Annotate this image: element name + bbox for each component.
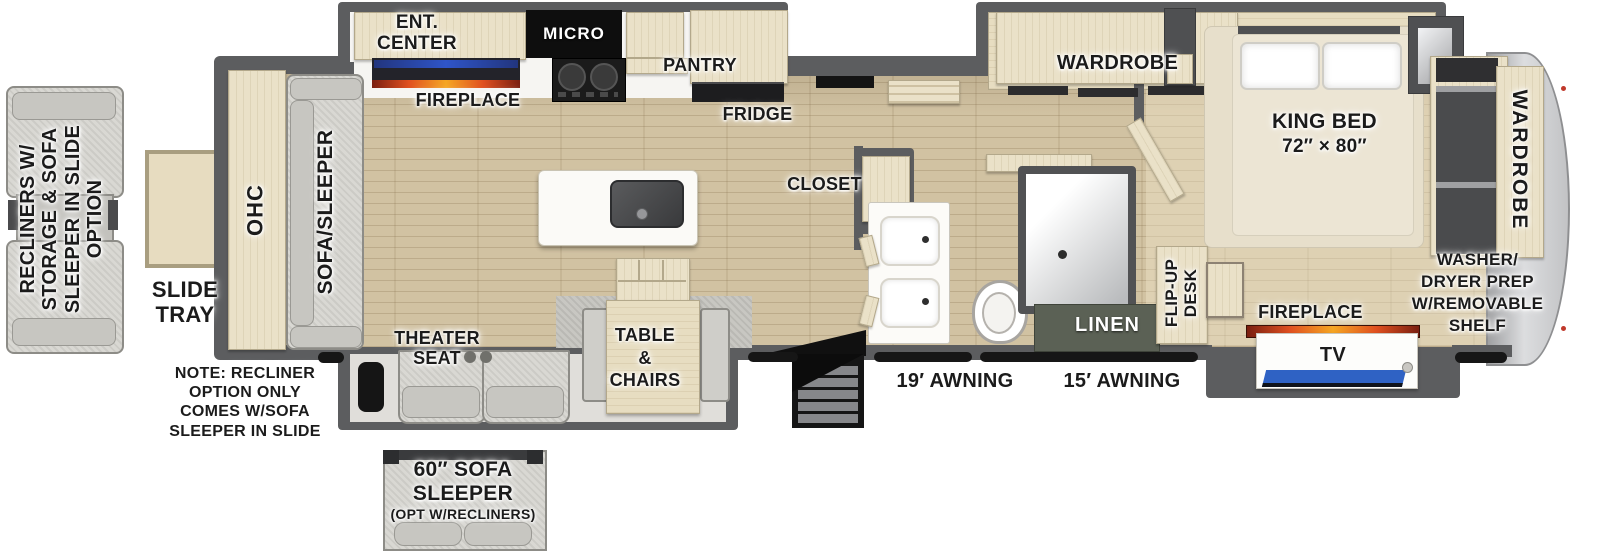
sofa-option-line: SLEEPER: [383, 482, 543, 506]
slide-tray-line: TRAY: [130, 303, 240, 328]
pillow: [1322, 42, 1402, 90]
sofa-option-cushion: [464, 522, 532, 546]
step: [798, 414, 858, 423]
pantry-upper-cabinet: [626, 12, 684, 58]
washer-dryer-line: DRYER PREP: [1390, 271, 1565, 293]
note-line: SLEEPER IN SLIDE: [165, 422, 325, 441]
wardrobe-bedroom-label: WARDROBE: [1040, 52, 1195, 74]
note-line: NOTE: RECLINER: [165, 364, 325, 383]
fireplace-front-glass: [374, 60, 518, 68]
ent-center-label: ENT. CENTER: [352, 12, 482, 55]
console-latch: [108, 200, 118, 230]
awning-rail: [980, 352, 1198, 362]
sink-drain: [922, 298, 929, 305]
island-sink: [610, 180, 684, 228]
sofa-sleeper-label: SOFA/SLEEPER: [314, 130, 338, 295]
hutch-divider: [662, 260, 664, 280]
recliner-back: [12, 92, 116, 120]
recliner-option-line: SLEEPER IN SLIDE: [62, 125, 84, 313]
ohc-label: OHC: [244, 184, 269, 236]
sofa-option-line: 60″ SOFA: [383, 458, 543, 482]
hall-steps: [888, 80, 960, 104]
sink-drain: [922, 236, 929, 243]
bath-sink: [880, 216, 940, 266]
theater-seat-line: SEAT: [372, 348, 502, 368]
ent-center-line: ENT.: [352, 12, 482, 33]
theater-seat-line: THEATER: [372, 328, 502, 348]
faucet: [636, 208, 648, 220]
wall: [776, 64, 988, 76]
table-chairs-line: CHAIRS: [595, 369, 695, 392]
washer-dryer-line: WASHER/: [1390, 249, 1565, 271]
tv-label: TV: [1298, 344, 1368, 366]
bath-sink: [880, 278, 940, 328]
fridge-label: FRIDGE: [710, 104, 805, 124]
pillow: [1240, 42, 1320, 90]
fireplace-bedroom-label: FIREPLACE: [1248, 302, 1373, 322]
rear-closet-shelf: [1436, 86, 1498, 182]
desk-stool: [1206, 262, 1244, 318]
recliner-option-line: RECLINERS W/: [17, 125, 39, 313]
hanging-rod: [1078, 88, 1138, 97]
awning-arm: [318, 352, 344, 363]
stove-knobs: [558, 92, 618, 97]
sofa-option-line: (OPT W/RECLINERS): [383, 506, 543, 522]
hutch-shelf: [618, 280, 686, 282]
flip-up-desk-line: DESK: [1181, 259, 1200, 327]
flip-up-desk-line: FLIP-UP: [1162, 259, 1181, 327]
dinette-hutch: [616, 258, 690, 306]
washer-dryer-label: WASHER/ DRYER PREP W/REMOVABLE SHELF: [1390, 249, 1565, 337]
king-bed-line: KING BED: [1252, 108, 1397, 135]
flip-up-desk-label: FLIP-UP DESK: [1162, 259, 1200, 327]
toilet-seat: [982, 292, 1016, 334]
fireplace-front-label: FIREPLACE: [398, 90, 538, 110]
closet-label: CLOSET: [772, 174, 877, 194]
theater-seat-cushion: [402, 386, 480, 418]
hanging-rod: [1008, 86, 1068, 95]
fridge: [692, 82, 784, 102]
hutch-divider: [638, 260, 640, 280]
linen-label: LINEN: [1060, 314, 1155, 336]
fireplace-front-flame: [372, 80, 520, 88]
sofa-arm: [290, 78, 362, 100]
marker-light: [1561, 86, 1566, 91]
shower: [1018, 166, 1136, 314]
king-bed-label: KING BED 72″ × 80″: [1252, 108, 1397, 160]
rear-closet-shelf: [1436, 182, 1498, 254]
table-chairs-line: &: [595, 347, 695, 370]
recliner-option-label: RECLINERS W/ STORAGE & SOFA SLEEPER IN S…: [17, 125, 107, 313]
burner: [590, 63, 618, 91]
slide-tray-line: SLIDE: [130, 278, 240, 303]
wardrobe-rear-label: WARDROBE: [1507, 90, 1531, 231]
slide-tray-label: SLIDE TRAY: [130, 278, 240, 327]
sofa-option-cushion: [394, 522, 462, 546]
step: [798, 390, 858, 399]
hanging-rod: [1148, 86, 1208, 95]
hall-opening: [816, 76, 874, 88]
recliner-option-line: STORAGE & SOFA: [40, 125, 62, 313]
sofa-option-label: 60″ SOFA SLEEPER (OPT W/RECLINERS): [383, 458, 543, 522]
step: [798, 402, 858, 411]
awning-19-label: 19′ AWNING: [880, 370, 1030, 392]
washer-dryer-line: SHELF: [1390, 315, 1565, 337]
sofa-back: [290, 100, 314, 326]
note-label: NOTE: RECLINER OPTION ONLY COMES W/SOFA …: [165, 364, 325, 441]
slideout-window: [358, 362, 384, 412]
tv-screen: [1262, 370, 1406, 387]
tv-knob: [1402, 362, 1413, 373]
recliner-option-line: OPTION: [84, 125, 106, 313]
note-line: OPTION ONLY: [165, 383, 325, 402]
awning-15-label: 15′ AWNING: [1047, 370, 1197, 392]
micro-label: MICRO: [528, 25, 620, 44]
table-chairs-line: TABLE: [595, 324, 695, 347]
dinette-chair: [700, 308, 730, 402]
note-line: COMES W/SOFA: [165, 402, 325, 421]
table-chairs-label: TABLE & CHAIRS: [595, 324, 695, 392]
rear-closet-top: [1436, 58, 1498, 82]
awning-rail: [1455, 352, 1507, 363]
awning-rail: [748, 352, 798, 362]
theater-seat-cushion: [486, 386, 564, 418]
awning-rail: [874, 352, 972, 362]
floorplan-canvas: RECLINERS W/ STORAGE & SOFA SLEEPER IN S…: [0, 0, 1600, 553]
shower-drain: [1058, 250, 1067, 259]
ent-center-line: CENTER: [352, 33, 482, 54]
sofa-arm: [290, 326, 362, 348]
recliner-back: [12, 318, 116, 346]
theater-seat-label: THEATER SEAT: [372, 328, 502, 368]
king-bed-size: 72″ × 80″: [1252, 135, 1397, 160]
burner: [558, 63, 586, 91]
washer-dryer-line: W/REMOVABLE: [1390, 293, 1565, 315]
pantry-label: PANTRY: [645, 55, 755, 75]
